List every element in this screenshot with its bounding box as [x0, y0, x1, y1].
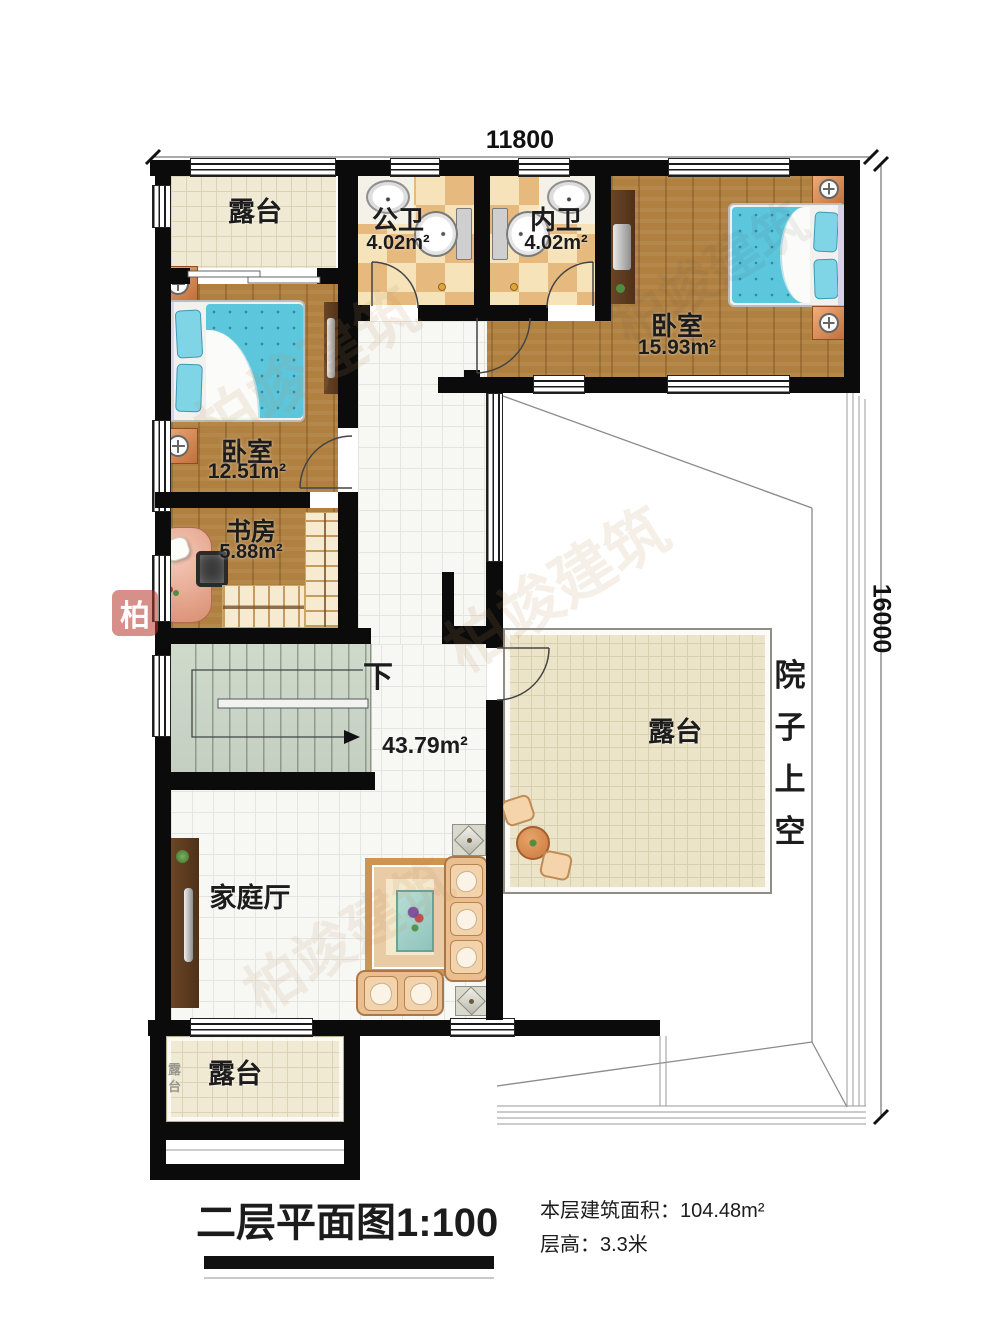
floor-plan-sheet: 11800 16000 露台 公卫 4.02m² 内卫 4.02m² 卧室 15… — [0, 0, 1000, 1333]
corner-table — [452, 824, 486, 856]
stairs-steps — [195, 644, 371, 772]
sofa-cushion — [450, 864, 483, 898]
height-note: 层高：3.3米 — [540, 1228, 880, 1257]
room-area-bath-public: 4.02m² — [352, 232, 444, 255]
room-label-terrace-bottom: 露台 — [170, 1052, 300, 1091]
room-label-terrace-middle: 露台 — [610, 710, 740, 749]
courtyard-label: 院子上空 — [768, 650, 812, 858]
dimension-right: 16000 — [867, 564, 896, 674]
window — [152, 655, 171, 737]
hall-area-label: 43.79m² — [350, 732, 500, 759]
window — [667, 375, 790, 394]
leaf-icon — [173, 590, 179, 596]
pillow — [813, 259, 838, 300]
toilet-tank — [456, 208, 472, 260]
railing-window — [486, 393, 503, 562]
sofa-cushion — [364, 976, 398, 1011]
sofa-cushion — [450, 940, 483, 974]
room-label-terrace-top: 露台 — [195, 190, 315, 229]
room-area-study: 5.88m² — [188, 541, 314, 564]
nightstand — [812, 172, 846, 206]
sofa-cushion — [450, 902, 483, 936]
corner-table — [455, 986, 487, 1016]
floor-drain-icon — [438, 283, 446, 291]
lamp-icon — [819, 179, 839, 199]
window — [668, 158, 790, 177]
area-note: 本层建筑面积：104.48m² — [540, 1194, 880, 1223]
coffee-table — [396, 890, 434, 952]
window — [190, 158, 336, 177]
wardrobe — [222, 585, 305, 628]
bed-right — [728, 203, 846, 307]
room-area-bath-private: 4.02m² — [510, 232, 602, 255]
lamp-icon — [819, 313, 839, 333]
plant-icon — [176, 850, 189, 863]
nightstand — [812, 306, 846, 340]
title-underline-thin — [204, 1277, 494, 1279]
window — [390, 158, 440, 177]
window — [518, 158, 570, 177]
sofa-cushion — [404, 976, 438, 1011]
bed-left — [162, 300, 305, 422]
window — [152, 185, 171, 228]
room-area-bedroom-right: 15.93m² — [614, 336, 740, 360]
window — [450, 1018, 515, 1037]
window — [533, 375, 585, 394]
monitor-icon — [613, 224, 631, 270]
stairs-down-label: 下 — [358, 652, 398, 696]
sofa-right — [444, 856, 488, 982]
room-area-bedroom-left: 12.51m² — [184, 460, 310, 484]
pillow — [813, 211, 839, 252]
pillow — [175, 309, 203, 358]
window — [152, 555, 171, 622]
sheet-title: 二层平面图1:100 — [196, 1190, 526, 1248]
sofa-bottom — [356, 970, 444, 1016]
title-underline — [204, 1256, 494, 1269]
pillow — [175, 364, 203, 413]
room-label-family-hall: 家庭厅 — [185, 876, 315, 915]
window — [190, 1018, 313, 1037]
floor-drain-icon — [510, 283, 518, 291]
tv-icon — [327, 318, 335, 378]
dimension-top: 11800 — [420, 126, 620, 155]
plant-icon — [616, 284, 625, 293]
